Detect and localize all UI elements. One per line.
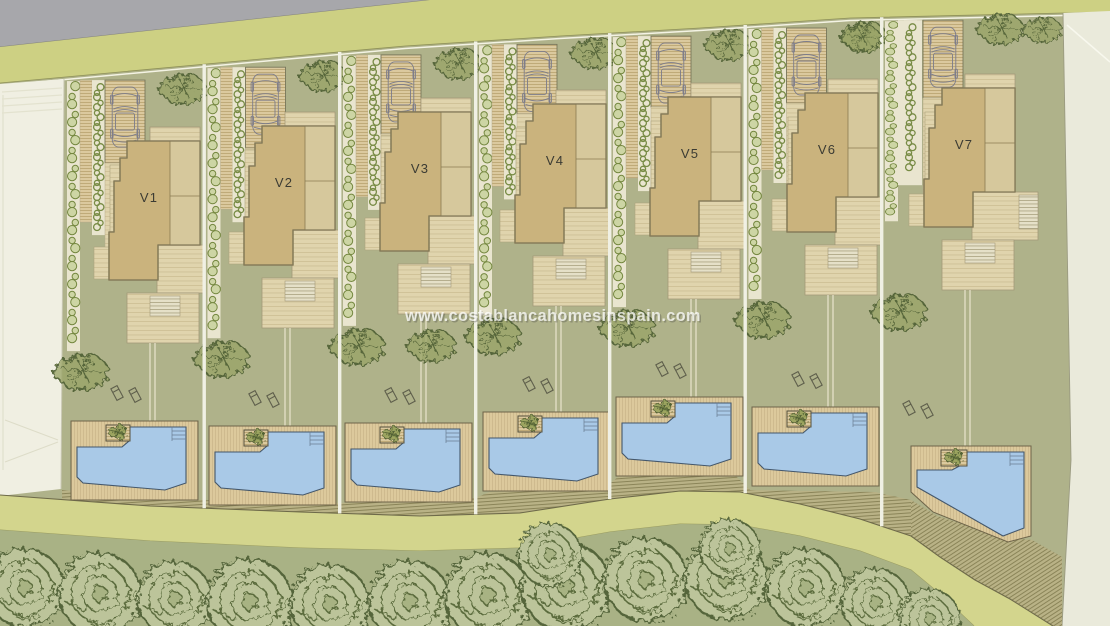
svg-text:V5: V5 (681, 146, 699, 161)
svg-text:V3: V3 (411, 161, 429, 176)
svg-text:V6: V6 (818, 142, 836, 157)
svg-text:www.costablancahomesinspain.co: www.costablancahomesinspain.com (404, 307, 701, 325)
svg-text:V4: V4 (546, 153, 564, 168)
svg-text:V2: V2 (275, 175, 293, 190)
svg-text:V7: V7 (955, 137, 973, 152)
svg-text:V1: V1 (140, 190, 158, 205)
